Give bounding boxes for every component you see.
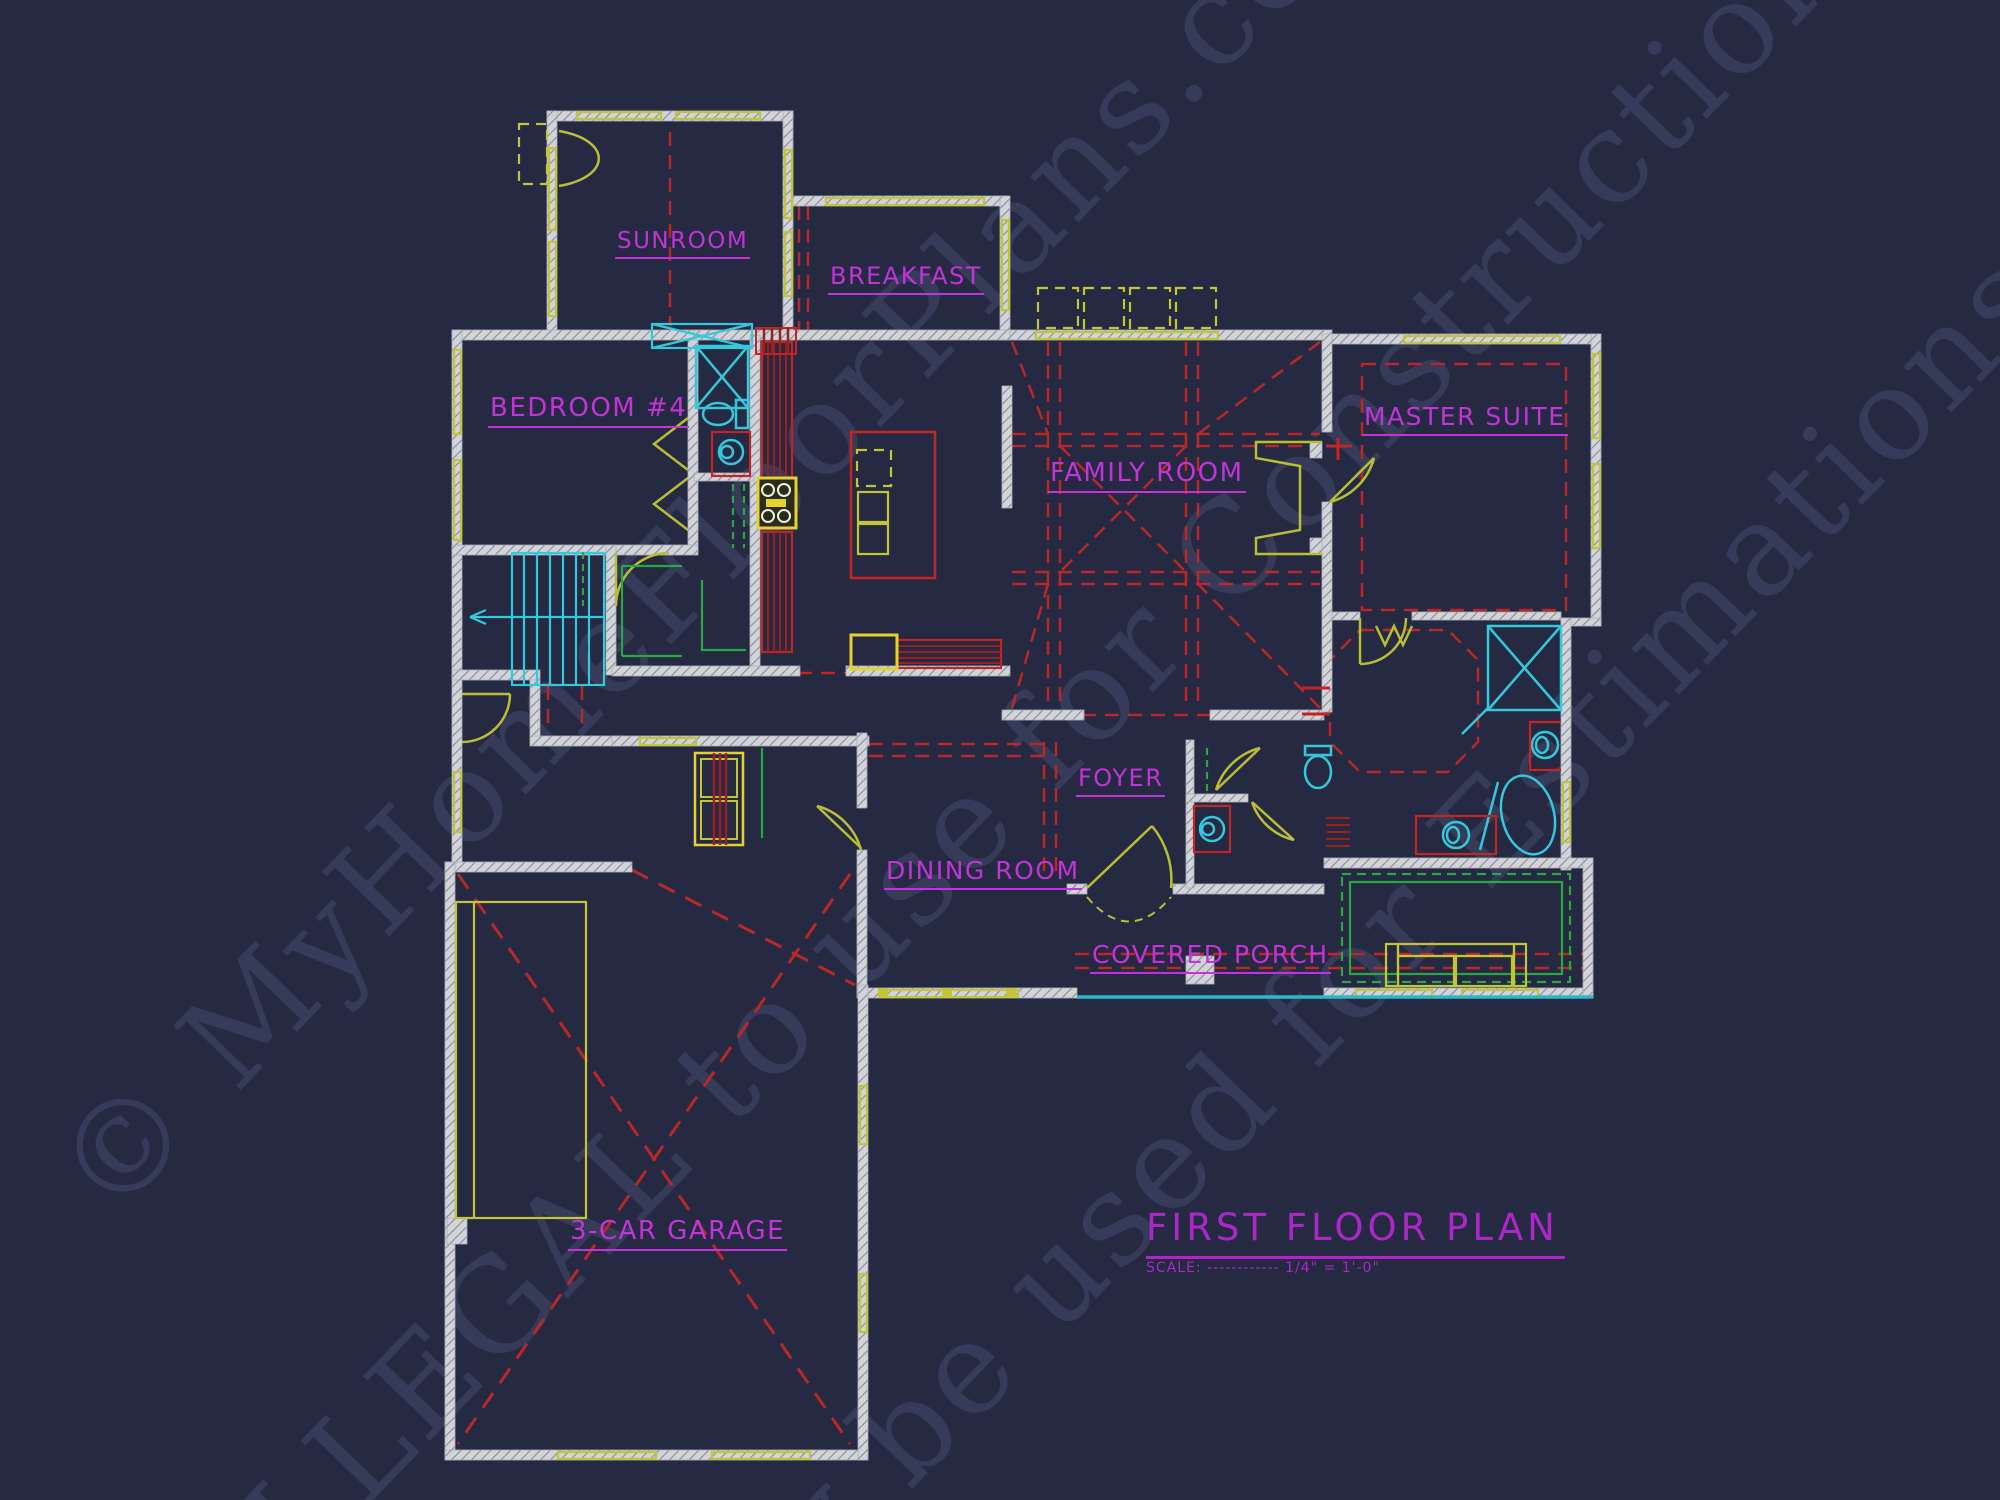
butler-door-arc <box>817 806 861 850</box>
range-icon <box>758 478 796 528</box>
island-cabinets <box>858 492 888 554</box>
room-label-master-suite: MASTER SUITE <box>1362 402 1568 436</box>
blueprint-canvas: © MyHomeFloorPlans.com ILLEGAL to use fo… <box>0 0 2000 1500</box>
oven-icon <box>851 635 897 669</box>
kitchen-back-counter <box>851 635 1001 669</box>
foyer-closet-door-arc <box>1216 748 1260 790</box>
mudroom-cabinet <box>695 753 743 845</box>
room-label-bedroom4: BEDROOM #4 <box>488 393 689 428</box>
plan-scale-note: SCALE: ------------ 1/4" = 1'-0" <box>1146 1260 1380 1276</box>
floor-plan-drawing: © MyHomeFloorPlans.com ILLEGAL to use fo… <box>0 0 2000 1500</box>
room-label-breakfast: BREAKFAST <box>828 262 984 295</box>
room-label-family-room: FAMILY ROOM <box>1048 458 1246 493</box>
room-label-garage: 3-CAR GARAGE <box>568 1216 787 1251</box>
front-door-transom-dashed <box>1087 897 1171 922</box>
plan-title: FIRST FLOOR PLAN <box>1146 1206 1565 1259</box>
room-label-sunroom: SUNROOM <box>615 228 750 259</box>
sunroom-door-arc <box>559 131 599 186</box>
room-label-foyer: FOYER <box>1076 764 1165 797</box>
powder-door-arc <box>1252 802 1294 840</box>
powder-room-fixtures <box>1200 746 1331 841</box>
toilet-icon <box>1305 746 1331 788</box>
linen-cabinet <box>1326 818 1350 846</box>
room-label-covered-porch: COVERED PORCH <box>1090 940 1331 974</box>
room-label-dining-room: DINING ROOM <box>884 856 1082 890</box>
front-door-leaf <box>1087 826 1171 888</box>
sink-icon <box>1200 817 1224 841</box>
